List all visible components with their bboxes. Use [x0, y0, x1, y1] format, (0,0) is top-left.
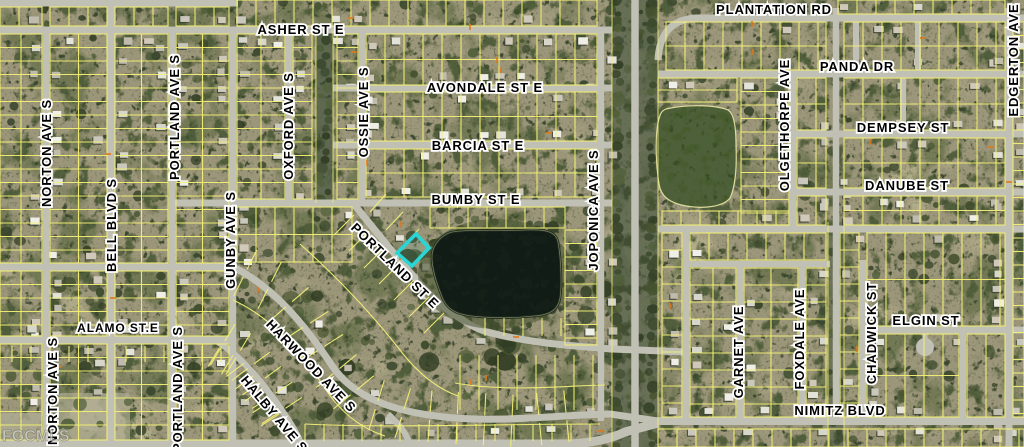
- svg-text:GARNET AVE: GARNET AVE: [731, 306, 746, 399]
- svg-text:EDGERTON AVE: EDGERTON AVE: [1006, 3, 1021, 116]
- svg-text:PLANTATION RD: PLANTATION RD: [716, 2, 832, 17]
- svg-text:NIMITZ BLVD: NIMITZ BLVD: [794, 403, 885, 418]
- svg-text:PORTLAND AVE S: PORTLAND AVE S: [167, 54, 182, 180]
- svg-text:JOPONICA AVE S: JOPONICA AVE S: [586, 149, 601, 270]
- svg-text:OLGETHORPE AVE: OLGETHORPE AVE: [777, 59, 792, 192]
- svg-text:BELL BLVD S: BELL BLVD S: [104, 178, 119, 272]
- svg-text:CHADWICK ST: CHADWICK ST: [864, 282, 879, 384]
- svg-text:ASHER ST E: ASHER ST E: [257, 22, 344, 37]
- svg-text:DEMPSEY ST: DEMPSEY ST: [857, 120, 950, 135]
- svg-text:FOXDALE AVE: FOXDALE AVE: [792, 289, 807, 390]
- svg-text:FGCMLS: FGCMLS: [2, 428, 70, 445]
- svg-text:GUNBY AVE S: GUNBY AVE S: [223, 191, 238, 289]
- svg-text:AVONDALE ST E: AVONDALE ST E: [427, 80, 543, 95]
- svg-text:BARCIA ST E: BARCIA ST E: [432, 138, 524, 153]
- svg-text:NORTON AVE S: NORTON AVE S: [39, 99, 54, 207]
- svg-text:BUMBY ST E: BUMBY ST E: [432, 192, 521, 207]
- svg-text:DANUBE ST: DANUBE ST: [865, 178, 949, 193]
- svg-text:ELGIN ST: ELGIN ST: [892, 313, 959, 328]
- svg-text:PANDA DR: PANDA DR: [820, 59, 894, 74]
- svg-text:PORTLAND AVE S: PORTLAND AVE S: [170, 326, 185, 447]
- svg-text:OSSIE AVE S: OSSIE AVE S: [356, 67, 371, 158]
- svg-text:OXFORD AVE S: OXFORD AVE S: [281, 72, 296, 180]
- svg-text:ALAMO ST.E: ALAMO ST.E: [77, 321, 159, 335]
